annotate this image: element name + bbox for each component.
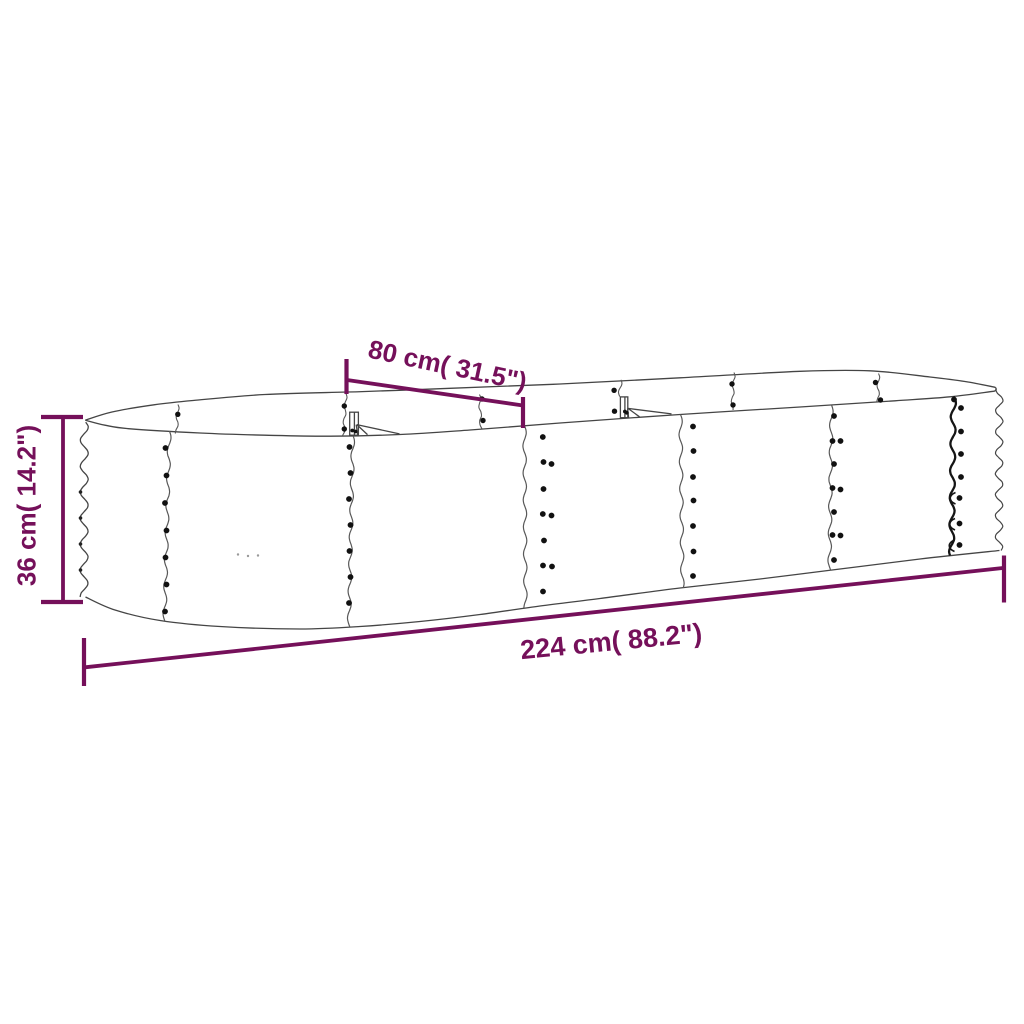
- svg-text:224 cm( 88.2"): 224 cm( 88.2"): [519, 618, 703, 665]
- svg-text:36 cm( 14.2"): 36 cm( 14.2"): [12, 425, 42, 586]
